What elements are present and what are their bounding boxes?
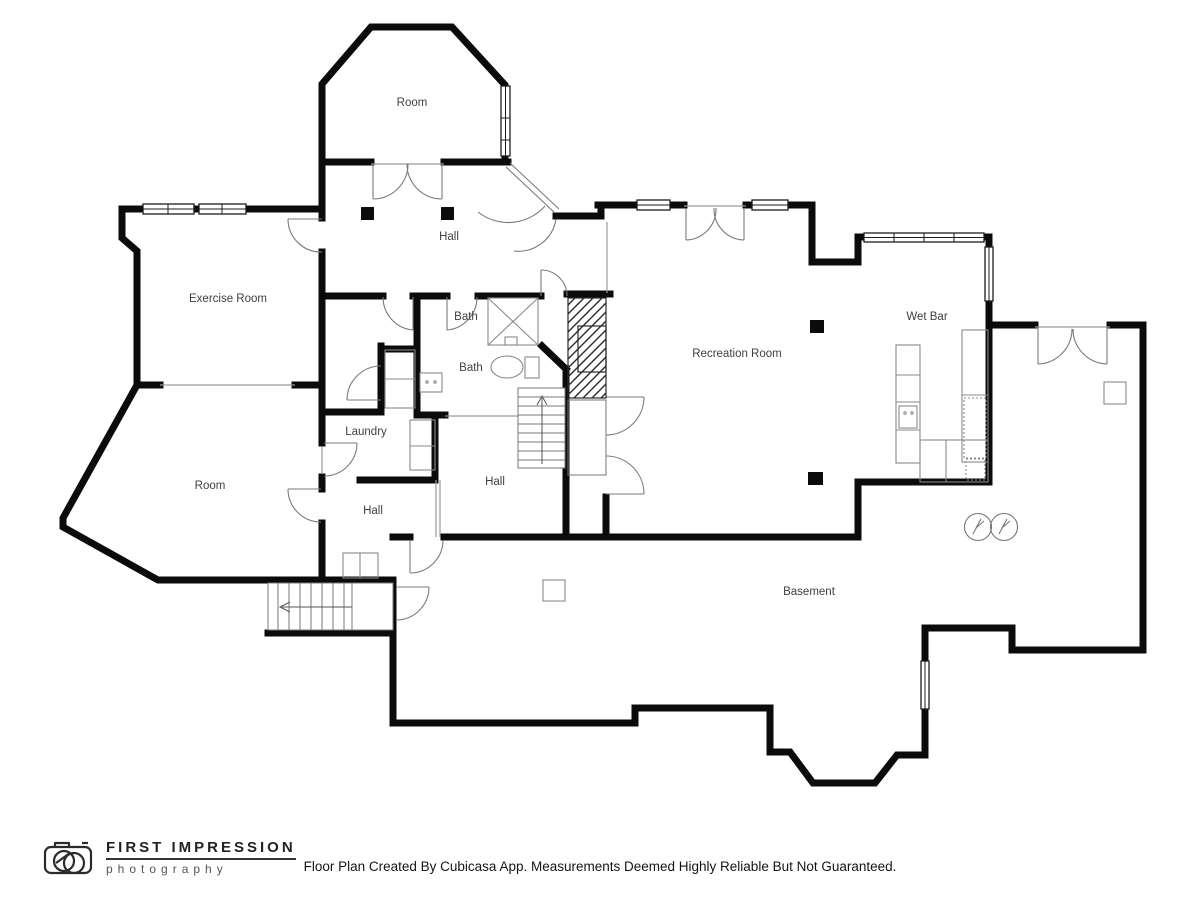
label-room-left: Room: [195, 480, 226, 492]
disclaimer-text: Floor Plan Created By Cubicasa App. Meas…: [0, 859, 1200, 874]
walls: [63, 27, 1143, 783]
fixtures: [343, 298, 1126, 601]
doors: [288, 163, 1107, 620]
toilet: [491, 356, 539, 378]
column-outline-east: [1104, 382, 1126, 404]
floor-plan-svg: Room Hall Exercise Room Bath Bath Wet Ba…: [0, 0, 1200, 826]
wet-bar-counters: [896, 330, 988, 482]
label-recreation-room: Recreation Room: [692, 348, 781, 360]
label-hall-lower: Hall: [363, 505, 383, 517]
label-room-top: Room: [397, 97, 428, 109]
floor-plan-page: Room Hall Exercise Room Bath Bath Wet Ba…: [0, 0, 1200, 900]
water-heaters: [965, 514, 1018, 541]
label-basement: Basement: [783, 586, 836, 598]
column-outline-basement: [543, 580, 565, 601]
stairs-upper-flight-hatched: [568, 298, 606, 398]
footer: FIRST IMPRESSION photography Floor Plan …: [0, 826, 1200, 900]
label-bath-lower: Bath: [459, 362, 483, 374]
label-laundry: Laundry: [345, 426, 387, 438]
label-bath-upper: Bath: [454, 311, 478, 323]
stairs-exterior: [268, 583, 393, 630]
logo-company-name: FIRST IMPRESSION: [106, 839, 296, 856]
bath-sink: [420, 373, 442, 392]
laundry-cabinet: [410, 420, 435, 470]
stairs-center: [518, 388, 606, 475]
label-hall-upper: Hall: [439, 231, 459, 243]
label-hall-center: Hall: [485, 476, 505, 488]
label-exercise-room: Exercise Room: [189, 293, 267, 305]
shower: [488, 298, 538, 345]
label-wet-bar: Wet Bar: [906, 311, 947, 323]
